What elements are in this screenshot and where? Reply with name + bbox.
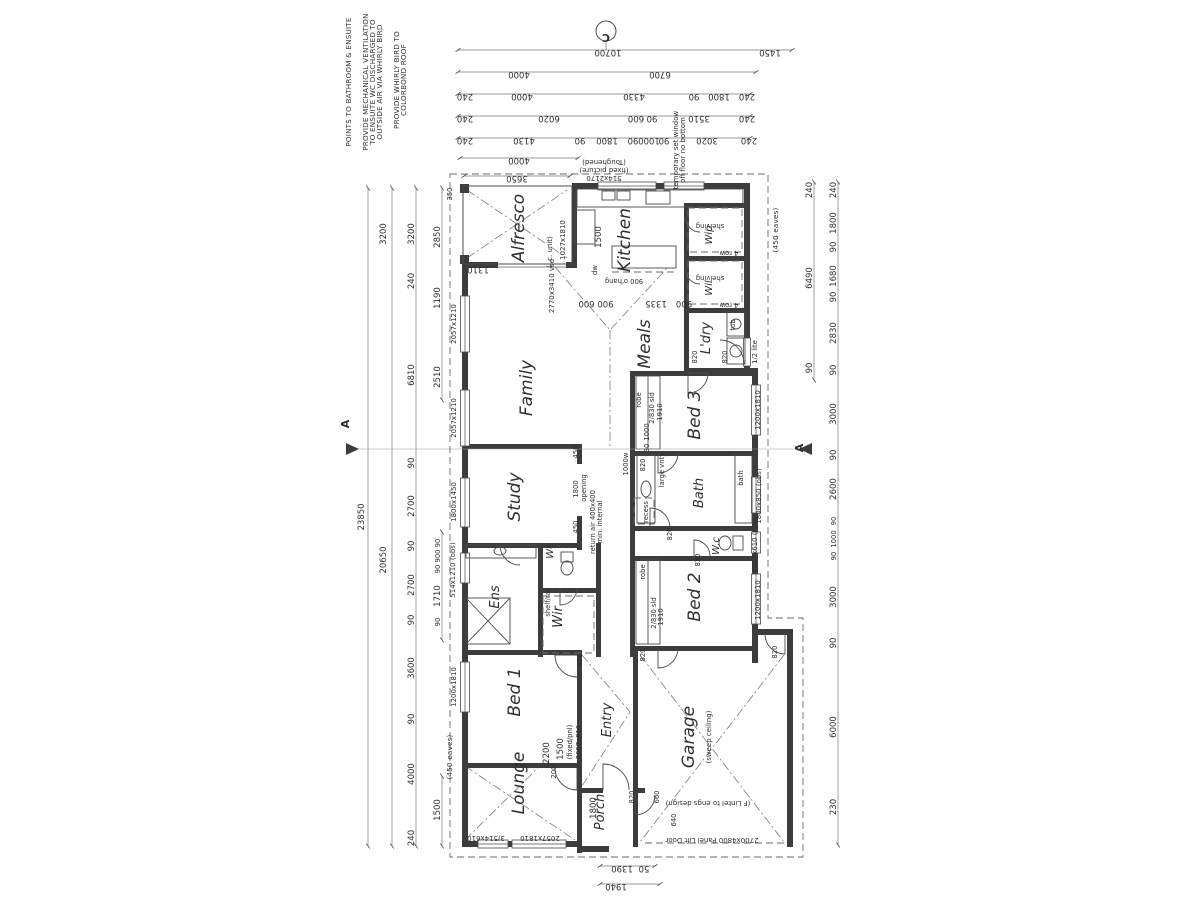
plan-label: 20650 — [379, 546, 389, 573]
room-bed3: Bed 3 — [685, 390, 705, 439]
plan-label: 240 — [407, 830, 417, 846]
note-mech-vent-3: OUTSIDE AIR VIA WHIRLY BIRD — [375, 24, 384, 139]
plan-label: 1200x1810 — [754, 580, 762, 620]
plan-label: 200 — [550, 766, 558, 779]
plan-label: 1800 — [589, 797, 599, 819]
plan-label: 90 — [407, 615, 417, 626]
wall-segment — [460, 255, 469, 264]
plan-label: 450 — [572, 446, 580, 459]
plan-label: 6810 — [407, 364, 417, 386]
plan-label: shelving — [696, 274, 724, 282]
plan-label: 1800 — [596, 135, 618, 145]
room-bed1: Bed 1 — [505, 667, 525, 716]
wall-segment — [752, 629, 792, 635]
wall-segment — [635, 788, 645, 793]
plan-label: 1710 — [433, 585, 443, 607]
plan-label: 820 — [639, 649, 647, 662]
plan-label: shelving — [696, 222, 724, 230]
plan-label: 2057x1810 — [520, 834, 560, 842]
plan-label: 1450 — [759, 47, 781, 57]
door-arc — [555, 655, 577, 677]
plan-label: 1027x610 (obs) — [751, 517, 759, 573]
section-marker-c: C — [602, 31, 610, 44]
plan-label: 4130 — [513, 135, 535, 145]
plan-label: 90 — [829, 450, 839, 461]
plan-label: (sweep ceiling) — [705, 710, 713, 763]
plan-label: 90 — [434, 565, 442, 574]
plan-label: 90 — [647, 113, 658, 123]
plan-label: 3000 — [829, 586, 839, 608]
plan-label: 1200x1810 — [754, 390, 762, 430]
eaves-outline — [450, 174, 803, 857]
plan-label: 90 — [628, 135, 639, 145]
wall-segment — [635, 646, 756, 651]
window-symbol — [744, 338, 751, 366]
plan-label: 1000 — [638, 135, 660, 145]
plan-label: 3510 — [688, 113, 710, 123]
room-family: Family — [517, 359, 537, 416]
plan-label: 1800 — [572, 480, 580, 497]
plan-label: 900 — [434, 550, 442, 563]
window-symbol — [461, 553, 470, 583]
room-wc: W.c — [711, 537, 722, 555]
plan-label: 1800 — [829, 212, 839, 234]
plan-label: 6020 — [538, 113, 560, 123]
plan-label: 2200 — [542, 742, 552, 764]
wall-segment — [577, 846, 609, 852]
plan-label: (450 eaves) — [445, 734, 454, 779]
plan-label: recess — [642, 501, 650, 523]
plan-label: 2830 — [829, 322, 839, 344]
plan-label: 900 o'hang — [605, 277, 643, 285]
room-wir: Wir — [551, 604, 566, 627]
plan-label: 4000 — [508, 155, 530, 165]
plan-label: 1500 — [556, 738, 566, 760]
plan-label: 2/830 sld — [648, 392, 656, 424]
plan-label: 1000 — [643, 423, 651, 440]
plan-label: 240 — [739, 113, 755, 123]
plan-label: 1910 — [656, 403, 664, 420]
plan-label: 640 — [670, 814, 678, 827]
wall-segment — [538, 548, 543, 657]
sink-bowl — [617, 191, 630, 200]
wall-segment — [577, 763, 582, 853]
wall-segment — [460, 184, 469, 193]
plan-label: 1910 — [657, 608, 665, 625]
wall-segment — [787, 629, 793, 847]
window-symbol — [461, 390, 470, 446]
plan-label: 3200 — [379, 223, 389, 245]
plan-label: 90 — [805, 363, 815, 374]
plan-label: 820 — [721, 351, 729, 364]
wall-segment — [577, 788, 603, 793]
plan-label: 820 — [639, 459, 647, 472]
plan-label: bath — [737, 470, 745, 485]
plan-label: 3200 — [407, 223, 417, 245]
plan-label: 240 — [457, 91, 473, 101]
plan-label: 600 — [628, 113, 644, 123]
plan-label: 3600 — [407, 657, 417, 679]
fridge-space — [575, 210, 595, 244]
cooktop — [646, 191, 670, 204]
bathtub — [735, 455, 752, 523]
plan-label: 1500 — [594, 226, 604, 248]
plan-label: 1940 — [605, 881, 627, 891]
window-symbol — [461, 662, 470, 712]
plan-label: 2510 — [433, 366, 443, 388]
plan-label: 23850 — [357, 503, 367, 530]
wall-segment — [633, 651, 638, 847]
plan-label: 50 — [639, 863, 650, 873]
plan-label: 820 — [691, 351, 699, 364]
plan-label: 90 — [829, 242, 839, 253]
door-arc — [603, 764, 629, 790]
plan-label: 240 — [457, 113, 473, 123]
plan-label: 90 — [575, 135, 586, 145]
plan-label: 900 600 — [578, 298, 613, 308]
plan-label: 4000 — [511, 91, 533, 101]
plan-label: 820 — [628, 791, 636, 804]
plan-label: 3650 — [506, 173, 528, 183]
plan-label: 90 — [830, 517, 838, 526]
plan-label: 1800x1450 — [450, 482, 458, 522]
room-alfresco: Alfresco — [509, 194, 529, 263]
wall-segment — [635, 526, 756, 531]
room-wc-ens: Wc — [545, 543, 556, 559]
plan-label: min. internal — [596, 500, 604, 543]
door-gap — [744, 338, 751, 366]
door-arc — [650, 508, 670, 528]
plan-label: (i.c. unit) — [546, 236, 554, 268]
plan-label: 240 — [457, 135, 473, 145]
note-bathroom-ensuite: POINTS TO BATHROOM & ENSUITE — [344, 17, 353, 146]
window-symbol — [461, 478, 470, 527]
plan-label: 90 — [407, 714, 417, 725]
wall-segment — [462, 650, 582, 655]
plan-label: 2057x1210 — [450, 398, 458, 438]
wall-segment — [572, 183, 577, 268]
plan-label: 4 row — [719, 301, 738, 309]
plan-label: 2700 — [407, 574, 417, 596]
room-ens: Ens — [488, 585, 503, 608]
floor-plan-svg: POINTS TO BATHROOM & ENSUITEPROVIDE MECH… — [0, 0, 1200, 900]
plan-label: (Toughened) — [582, 158, 626, 166]
plan-label: (F Lintel to engs design) — [665, 799, 750, 807]
basin — [641, 481, 651, 497]
plan-label: 820 — [576, 654, 584, 667]
plan-label: 240 — [741, 135, 757, 145]
plan-label: 90 — [643, 444, 651, 453]
plan-label: 6490 — [805, 267, 815, 289]
plan-label: 90 — [659, 135, 670, 145]
plan-label: 1190 — [433, 287, 443, 309]
plan-label: 90 — [689, 91, 700, 101]
plan-label: 3020 — [696, 135, 718, 145]
room-ldry: L'dry — [699, 322, 714, 354]
plan-label: 820 — [666, 528, 674, 541]
toilet-cistern — [561, 552, 573, 562]
room-study: Study — [505, 472, 525, 522]
labels-layer: POINTS TO BATHROOM & ENSUITEPROVIDE MECH… — [339, 13, 839, 891]
plan-label: 230 — [829, 799, 839, 815]
plan-label: 820 — [771, 646, 779, 659]
plan-label: 240 — [805, 182, 815, 198]
wall-segment — [596, 543, 601, 657]
plan-label: 90 — [829, 292, 839, 303]
note-whirly-2: COLORBOND ROOF — [399, 44, 408, 116]
plan-label: 1390 — [611, 863, 633, 873]
section-arrow-a-left — [346, 443, 359, 455]
plan-label: 2057x1210 — [450, 304, 458, 344]
toilet-cistern — [733, 536, 743, 550]
room-kitchen: Kitchen — [615, 208, 635, 272]
plan-label: 240 — [739, 91, 755, 101]
plan-label: 90 — [829, 365, 839, 376]
plan-label: 2057x810 — [575, 725, 583, 759]
plan-label: 1200x1810 — [450, 667, 458, 707]
plan-label: 90 — [434, 618, 442, 627]
plan-label: 90 — [434, 539, 442, 548]
plan-label: (450 eaves) — [771, 207, 780, 252]
plan-label: 1800 — [708, 91, 730, 101]
plan-label: 90 — [407, 458, 417, 469]
sink-bowl — [602, 191, 615, 200]
toilet-pan — [561, 561, 573, 575]
plan-label: 1335 — [645, 298, 667, 308]
plan-label: 2850 — [433, 226, 443, 248]
floorplan-page: POINTS TO BATHROOM & ENSUITEPROVIDE MECH… — [0, 0, 1200, 900]
plan-label: 240 — [829, 182, 839, 198]
plan-label: robe — [639, 564, 647, 579]
plan-label: 514x1210 (obs) — [449, 542, 457, 598]
plan-label: 90 — [829, 638, 839, 649]
plan-label: 4 row — [719, 249, 738, 257]
plan-label: 660 — [653, 791, 661, 804]
plan-label: 1027x1810 — [559, 220, 567, 260]
plan-label: dw — [591, 265, 599, 275]
room-entry: Entry — [600, 702, 615, 737]
plan-label: 1310 — [467, 264, 489, 274]
plan-label: 4000 — [407, 763, 417, 785]
plan-label: 3000 — [829, 403, 839, 425]
wall-segment — [630, 371, 756, 376]
door-arc — [555, 768, 577, 790]
dashed-line — [450, 174, 803, 857]
plan-label: shelf/rail — [544, 587, 552, 616]
window-symbol — [461, 296, 470, 352]
plan-label: 1800x850 (obs) — [755, 468, 763, 524]
room-lounge: Lounge — [509, 752, 529, 815]
plan-label: 6700 — [649, 69, 671, 79]
room-garage: Garage — [679, 706, 699, 768]
plan-label: 1500 — [433, 799, 443, 821]
plan-label: 90 — [830, 552, 838, 561]
plan-label: 900 — [676, 298, 692, 308]
plan-label: 6000 — [829, 716, 839, 738]
plan-label: 3/514x610 — [467, 834, 505, 842]
plan-label: 1000w — [622, 452, 630, 475]
plan-label: 90 — [407, 541, 417, 552]
plan-label: 1680 — [829, 265, 839, 287]
wall-segment — [630, 371, 635, 657]
plan-label: 514x2170 — [586, 174, 621, 182]
room-bed2: Bed 2 — [685, 572, 705, 621]
plan-label: 2700x4800 Panel Lift Door — [665, 836, 758, 844]
plan-label: 4330 — [623, 91, 645, 101]
plan-label: large vnty — [658, 453, 666, 487]
plan-label: off floor no bottom — [679, 117, 687, 183]
plan-label: 10700 — [594, 47, 621, 57]
wall-segment — [462, 543, 580, 548]
plan-label: 350 — [446, 188, 454, 201]
plan-label: 1000 — [830, 530, 838, 547]
section-marker-a-right: A — [793, 443, 806, 452]
plan-label: 2600 — [829, 478, 839, 500]
plan-label: robe — [635, 392, 643, 407]
section-marker-a-left: A — [339, 419, 352, 428]
plan-label: 820 — [694, 554, 702, 567]
plan-label: tub — [729, 319, 737, 330]
plan-label: 1/2 lite — [751, 340, 759, 364]
room-bath: Bath — [692, 478, 707, 508]
wall-segment — [462, 444, 580, 449]
plan-label: (fixed/pnl) — [566, 724, 574, 759]
plan-label: opening — [580, 474, 588, 501]
plan-label: 240 — [407, 273, 417, 289]
room-meals: Meals — [635, 319, 655, 368]
plan-label: 450 — [572, 521, 580, 534]
plan-label: (fixed picture) — [579, 166, 628, 174]
plan-label: 2700 — [407, 495, 417, 517]
plan-label: 4000 — [508, 69, 530, 79]
